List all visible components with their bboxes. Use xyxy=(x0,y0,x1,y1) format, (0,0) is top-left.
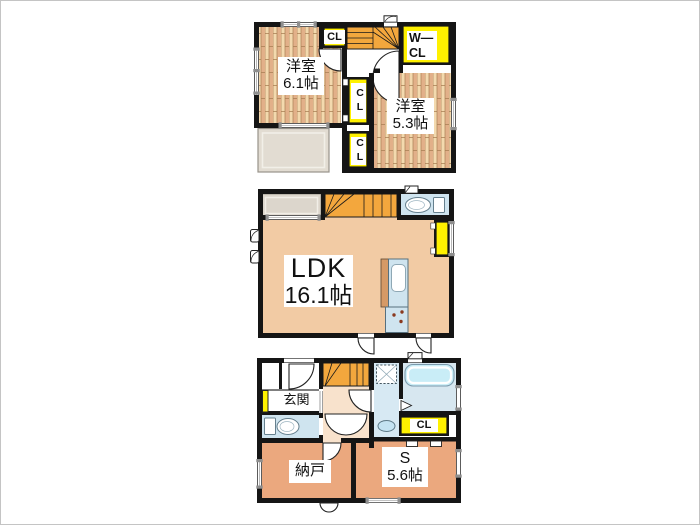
storage-room-label: 納戸 xyxy=(289,460,331,483)
closet-middle-label: CL xyxy=(351,83,366,119)
stairs-2f xyxy=(325,194,397,217)
window-tab xyxy=(407,441,418,447)
toilet-room-2f xyxy=(401,194,449,217)
kitchen-sink-icon xyxy=(392,265,406,292)
stove-icon xyxy=(386,307,409,333)
service-room-name: S xyxy=(400,450,411,468)
toilet-bowl-icon xyxy=(406,198,431,213)
shoe-cabinet xyxy=(263,391,269,413)
floor-plan-image: 洋室 6.1帖 CL W— CL CL CL 洋室 5.3帖 LDK 16.1帖… xyxy=(0,0,700,525)
service-room-label: S 5.6帖 xyxy=(382,447,428,487)
casement-window xyxy=(251,251,260,264)
entrance-step xyxy=(319,391,323,413)
room-53-size: 5.3帖 xyxy=(393,116,429,133)
kitchen-counter-side xyxy=(381,259,389,307)
window-tab xyxy=(431,441,442,447)
ldk-size: 16.1帖 xyxy=(285,283,353,309)
washing-machine-icon xyxy=(377,365,397,384)
toilet-tank-icon xyxy=(434,198,445,213)
room-61-name: 洋室 xyxy=(286,59,316,76)
walk-in-closet-label: W— CL xyxy=(407,31,437,60)
service-room-size: 5.6帖 xyxy=(387,468,423,485)
casement-window xyxy=(251,230,260,243)
ldk-name: LDK xyxy=(291,253,347,283)
entrance-label: 玄関 xyxy=(278,392,315,408)
floor-plan-2f xyxy=(241,181,466,355)
toilet-icon-1f xyxy=(265,418,300,435)
stairs-1f xyxy=(323,363,369,386)
stairs-3f xyxy=(347,27,399,49)
wash-basin-icon xyxy=(378,421,395,432)
room-61-size: 6.1帖 xyxy=(283,76,319,93)
closet-top-label: CL xyxy=(324,30,345,44)
closet-bottom-label: CL xyxy=(351,137,366,165)
room-53-label: 洋室 5.3帖 xyxy=(387,98,434,134)
floor-plan-1f xyxy=(241,347,469,524)
ldk-label: LDK 16.1帖 xyxy=(285,256,352,306)
casement-window xyxy=(405,186,418,193)
closet-1f-label: CL xyxy=(410,419,438,432)
door-arc xyxy=(320,503,338,512)
bathtub-icon xyxy=(405,365,454,387)
room-61-label: 洋室 6.1帖 xyxy=(278,57,324,95)
balcony-2f xyxy=(262,194,321,217)
balcony-3f xyxy=(258,129,329,173)
room-53-name: 洋室 xyxy=(395,99,425,116)
kitchen-2f xyxy=(381,259,408,333)
